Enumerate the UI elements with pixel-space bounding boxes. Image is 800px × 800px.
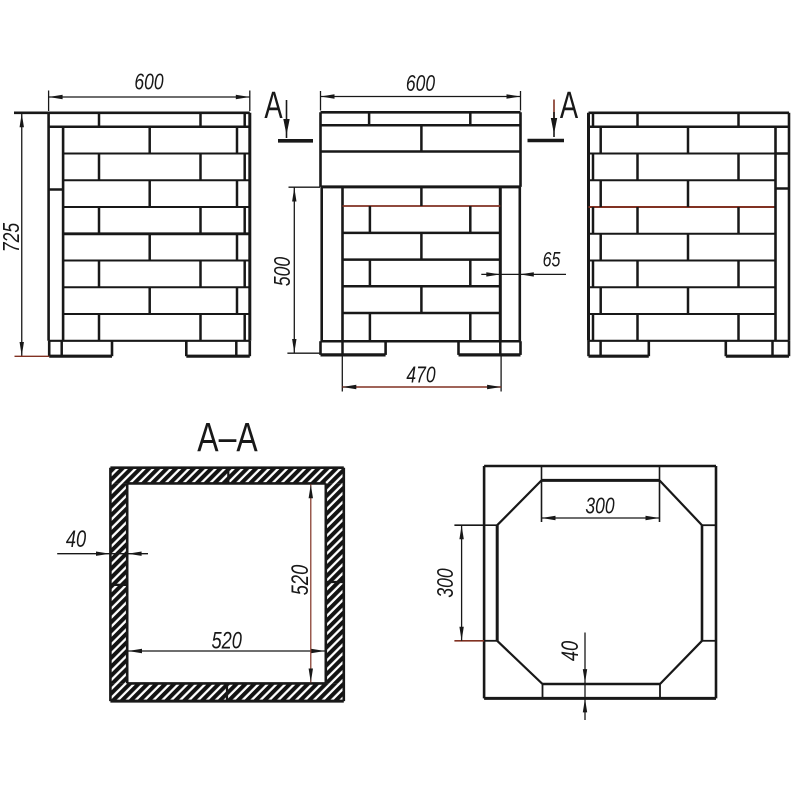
svg-text:725: 725 (0, 222, 25, 252)
svg-text:470: 470 (406, 363, 436, 388)
svg-text:300: 300 (585, 494, 615, 519)
svg-text:600: 600 (406, 72, 436, 97)
svg-text:A: A (264, 85, 283, 127)
svg-text:520: 520 (211, 627, 242, 654)
svg-text:A: A (560, 85, 579, 127)
svg-text:65: 65 (543, 247, 561, 271)
svg-text:A–A: A–A (197, 414, 258, 460)
svg-text:600: 600 (134, 70, 164, 95)
svg-text:300: 300 (434, 568, 459, 598)
svg-text:520: 520 (287, 565, 314, 596)
svg-text:500: 500 (271, 256, 296, 286)
svg-text:40: 40 (557, 641, 584, 661)
svg-text:40: 40 (66, 526, 86, 553)
